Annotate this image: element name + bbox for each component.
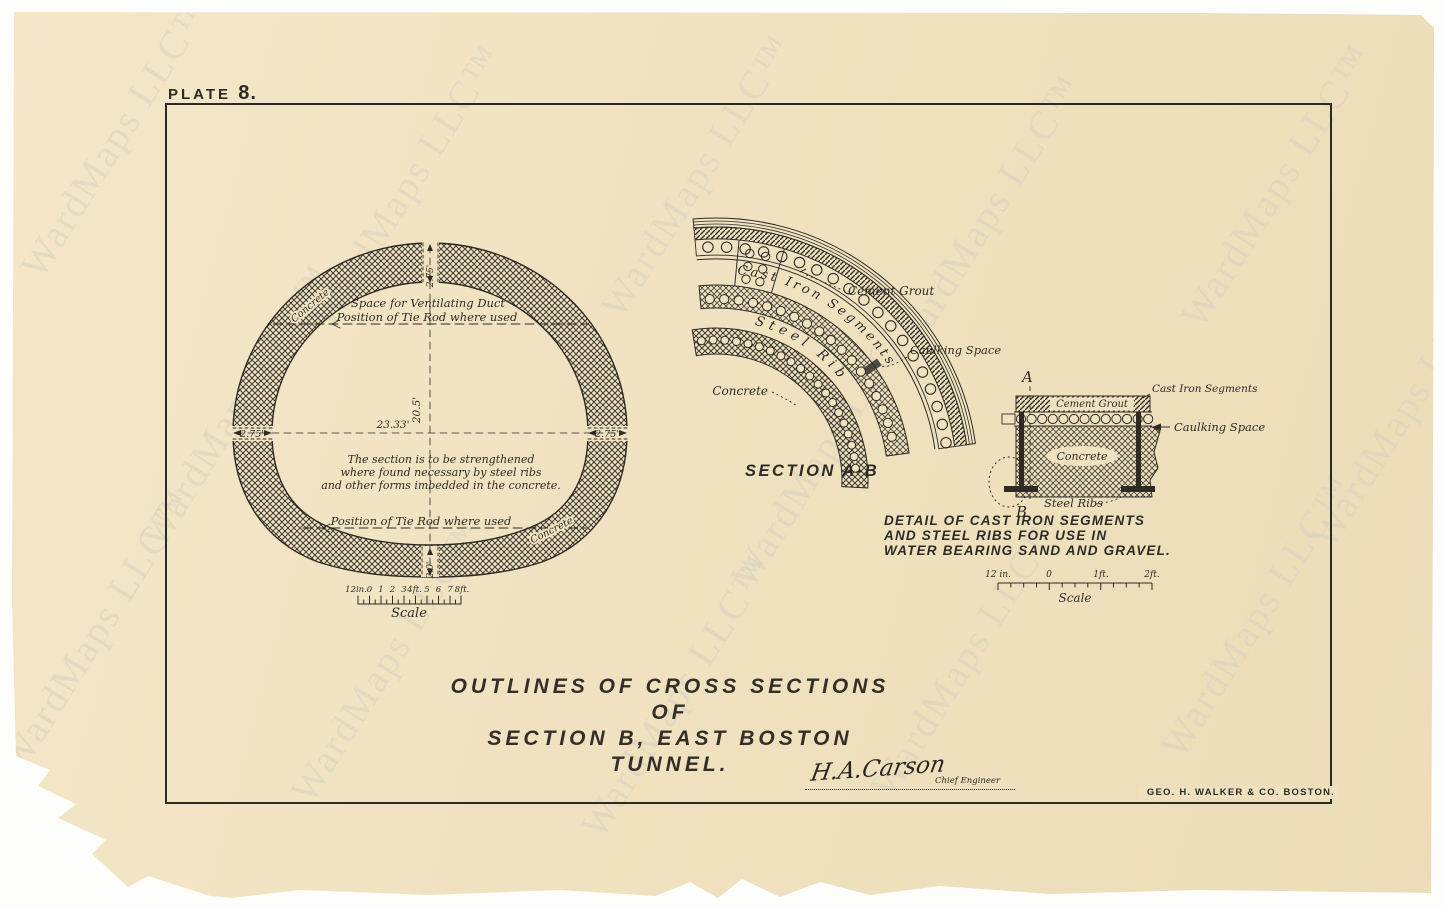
svg-text:1ft.: 1ft. bbox=[1093, 570, 1109, 580]
bolt-row-detail bbox=[1016, 414, 1152, 423]
dim-width: 23.33' bbox=[376, 419, 410, 431]
vent-duct-label: Space for Ventilating Duct bbox=[351, 296, 505, 310]
cement-grout-label-ab: Cement Grout bbox=[848, 284, 934, 298]
svg-text:1: 1 bbox=[378, 585, 383, 595]
caulking-space-label-ab: Caulking Space bbox=[910, 343, 1001, 357]
detail-title-line1: DETAIL OF CAST IRON SEGMENTS bbox=[884, 513, 1234, 528]
signature-name: H.A.Carson bbox=[809, 751, 947, 787]
note-line-2: where found necessary by steel ribs bbox=[340, 466, 541, 479]
svg-text:0: 0 bbox=[1046, 570, 1052, 580]
section-ab-title: SECTION A-B bbox=[745, 462, 879, 480]
svg-text:4ft.: 4ft. bbox=[406, 585, 422, 595]
tie-rod-label-lower: Position of Tie Rod where used bbox=[330, 514, 512, 528]
tunnel-cross-section: 2.75' 2.75' 2.75' 20.5' 23.33' 2.0' Spac… bbox=[232, 242, 628, 621]
scanned-plate: WardMaps LLC™ WardMaps LLC™ WardMaps LLC… bbox=[0, 0, 1445, 907]
signature-rule bbox=[805, 789, 1015, 790]
detail-title-line2: AND STEEL RIBS FOR USE IN bbox=[884, 528, 1234, 543]
cement-grout-label-detail: Cement Grout bbox=[1056, 399, 1129, 410]
svg-text:6: 6 bbox=[436, 585, 442, 595]
svg-text:12 in.: 12 in. bbox=[985, 570, 1011, 580]
svg-text:2ft.: 2ft. bbox=[1143, 570, 1160, 580]
concrete-label-detail: Concrete bbox=[1057, 450, 1108, 463]
detail-drawing: A B Cement Grout Concrete bbox=[985, 368, 1265, 605]
dim-height: 20.5' bbox=[411, 397, 423, 424]
svg-text:2: 2 bbox=[389, 585, 395, 595]
paper-sheet: WardMaps LLC™ WardMaps LLC™ WardMaps LLC… bbox=[0, 0, 1445, 907]
dim-left: 2.75' bbox=[239, 429, 264, 440]
note-line-1: The section is to be strengthened bbox=[348, 453, 535, 466]
cross-section-scale bbox=[358, 596, 461, 604]
printer-credit: GEO. H. WALKER & CO. BOSTON. bbox=[1138, 786, 1337, 799]
signature-role: Chief Engineer bbox=[935, 776, 1000, 786]
detail-title-line3: WATER BEARING SAND AND GRAVEL. bbox=[884, 543, 1234, 558]
svg-text:8ft.: 8ft. bbox=[455, 585, 470, 595]
concrete-label-ab: Concrete bbox=[712, 384, 768, 398]
detail-scale bbox=[998, 583, 1152, 590]
caulking-space-label-detail: Caulking Space bbox=[1174, 420, 1265, 434]
note-line-3: and other forms imbedded in the concrete… bbox=[321, 479, 561, 492]
dim-crown: 2.75' bbox=[426, 265, 436, 289]
signature-block: H.A.Carson Chief Engineer bbox=[805, 756, 1035, 796]
svg-text:0: 0 bbox=[367, 585, 373, 595]
tie-rod-label-upper: Position of Tie Rod where used bbox=[336, 310, 518, 324]
scale-word: Scale bbox=[1058, 591, 1091, 605]
svg-text:7: 7 bbox=[447, 585, 453, 595]
svg-text:5: 5 bbox=[424, 585, 429, 595]
steel-ribs-label-detail: Steel Ribs bbox=[1044, 496, 1103, 510]
marker-a: A bbox=[1020, 368, 1033, 386]
dim-invert: 2.0' bbox=[426, 562, 436, 580]
cast-iron-segments-label-detail: Cast Iron Segments bbox=[1152, 383, 1258, 395]
svg-text:3: 3 bbox=[401, 585, 406, 595]
svg-text:12in.: 12in. bbox=[345, 585, 367, 595]
plate-title-line1: OUTLINES OF CROSS SECTIONS OF bbox=[440, 674, 900, 726]
dim-right: 2.75' bbox=[594, 429, 619, 440]
detail-title: DETAIL OF CAST IRON SEGMENTS AND STEEL R… bbox=[884, 513, 1234, 558]
section-ab: Cast Iron Segments Steel Rib Cement Grou… bbox=[692, 218, 1001, 488]
scale-word: Scale bbox=[391, 606, 427, 621]
